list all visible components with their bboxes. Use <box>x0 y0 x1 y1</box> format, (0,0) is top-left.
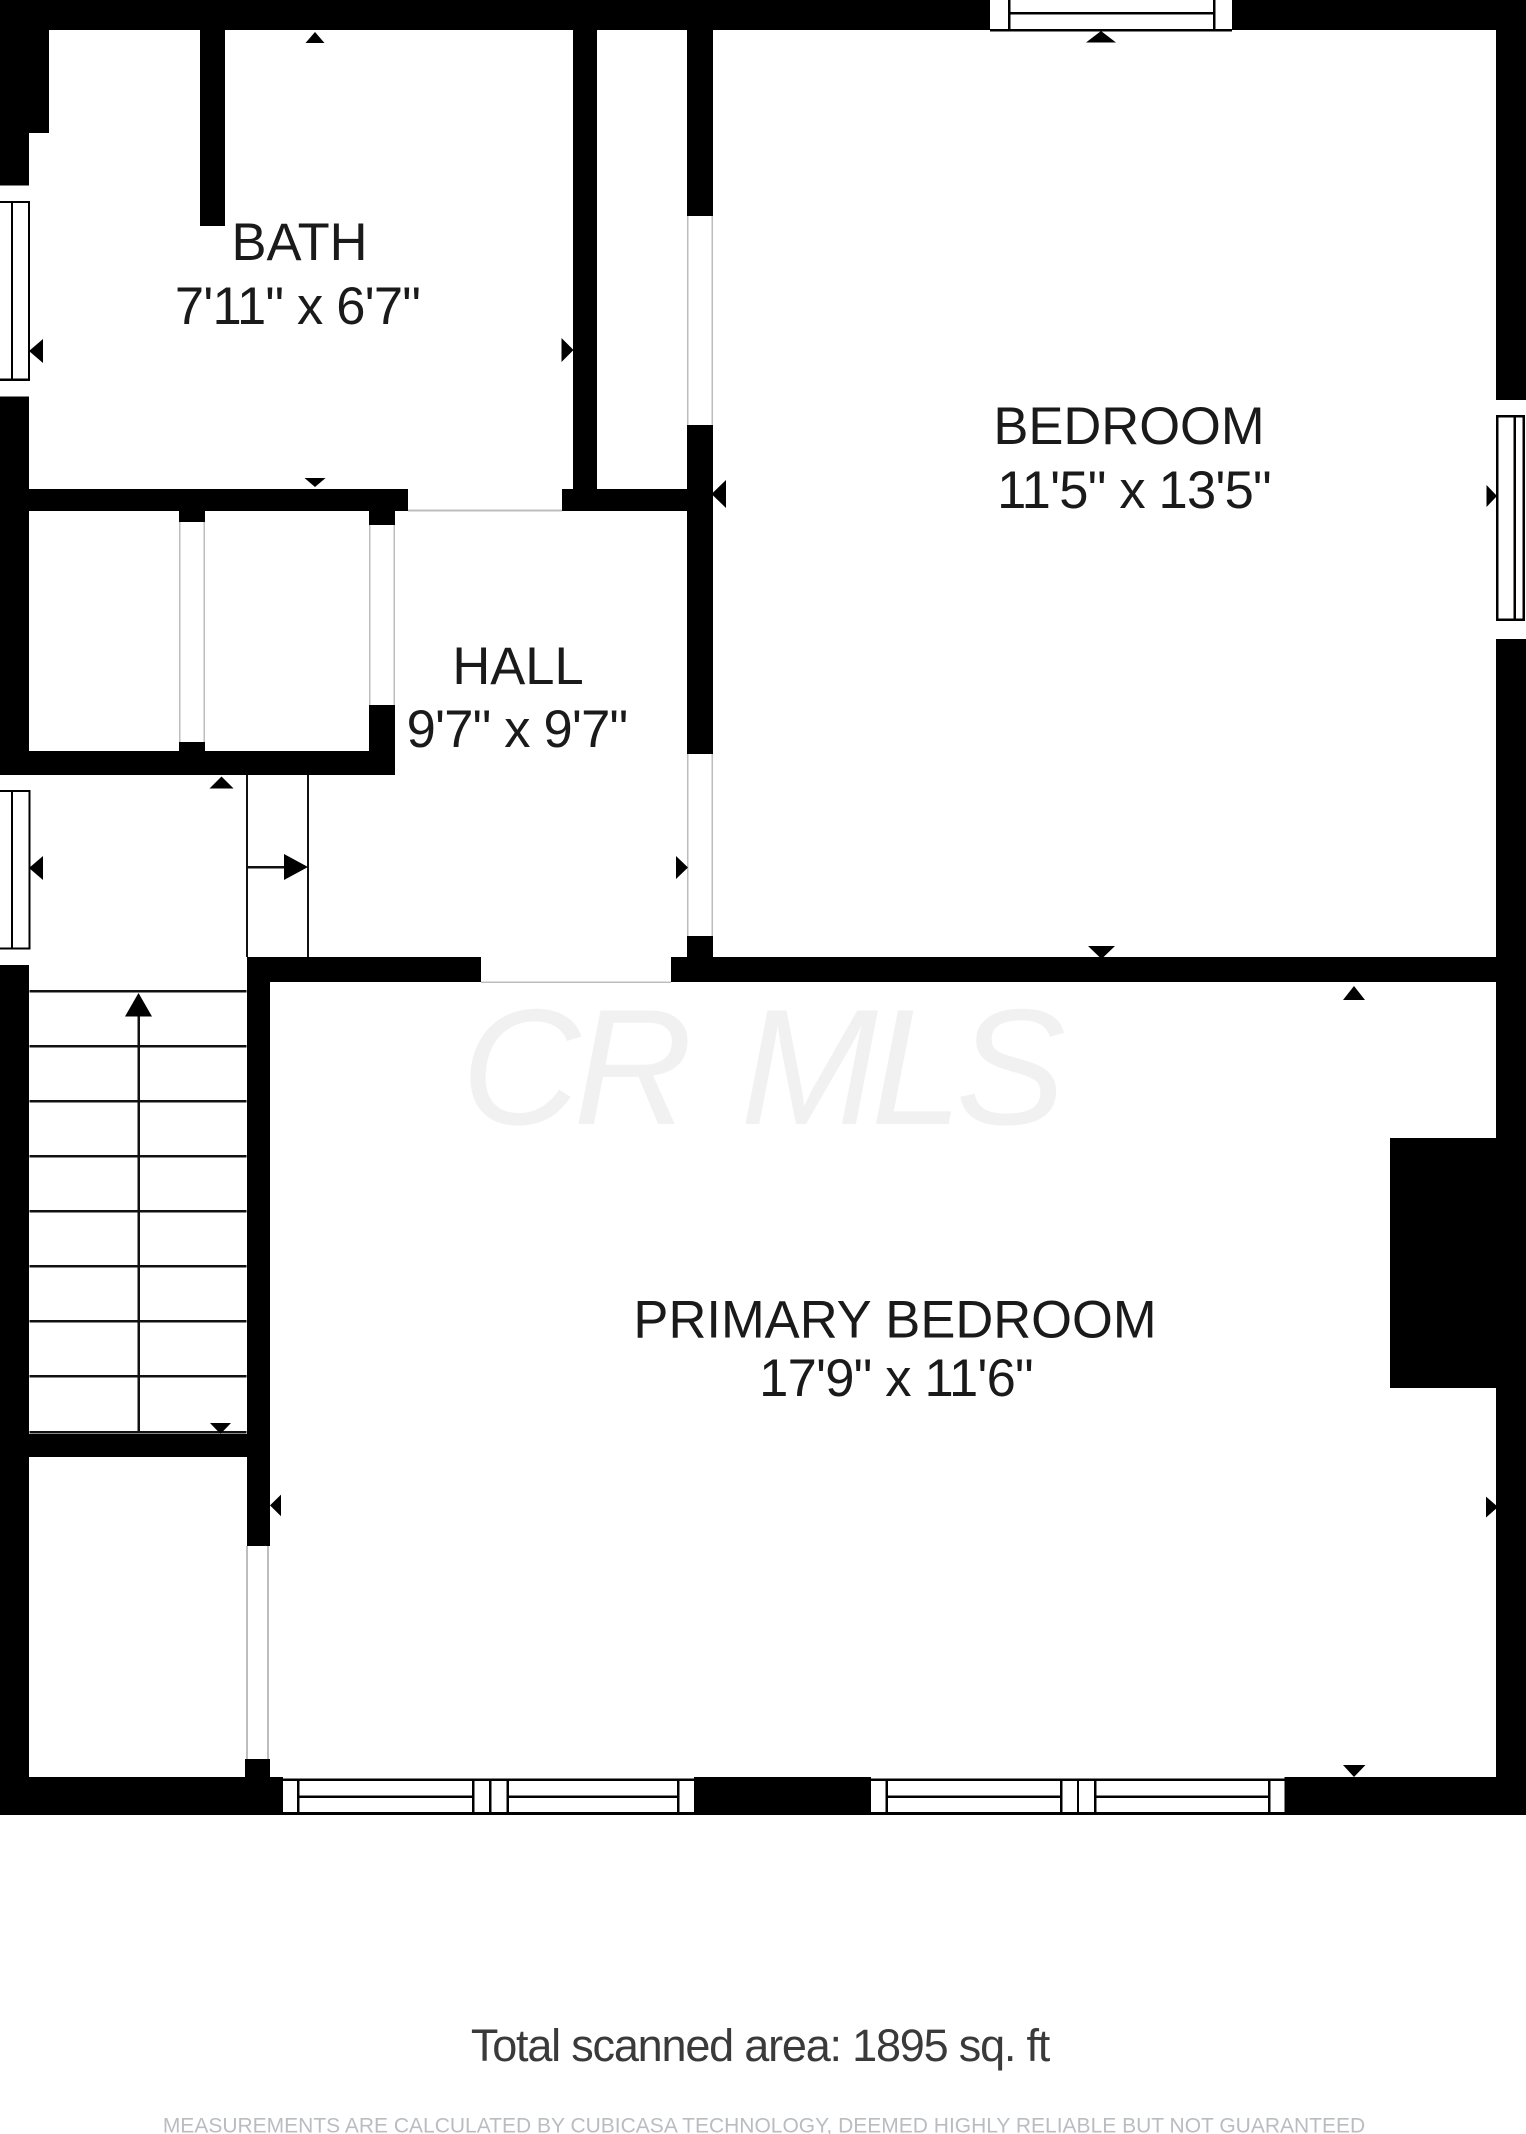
svg-text:9'7" x 9'7": 9'7" x 9'7" <box>407 700 628 759</box>
svg-text:BATH: BATH <box>231 213 367 272</box>
svg-text:PRIMARY BEDROOM: PRIMARY BEDROOM <box>633 1291 1156 1350</box>
svg-text:11'5" x 13'5": 11'5" x 13'5" <box>997 461 1271 520</box>
svg-text:7'11" x 6'7": 7'11" x 6'7" <box>175 277 420 336</box>
svg-text:17'9" x 11'6": 17'9" x 11'6" <box>759 1349 1033 1408</box>
svg-text:CR MLS: CR MLS <box>461 975 1064 1159</box>
svg-text:MEASUREMENTS ARE CALCULATED BY: MEASUREMENTS ARE CALCULATED BY CUBICASA … <box>163 2115 1365 2134</box>
svg-text:HALL: HALL <box>452 637 583 696</box>
svg-text:Total scanned area: 1895 sq. f: Total scanned area: 1895 sq. ft <box>471 2020 1051 2071</box>
svg-text:BEDROOM: BEDROOM <box>993 397 1264 456</box>
